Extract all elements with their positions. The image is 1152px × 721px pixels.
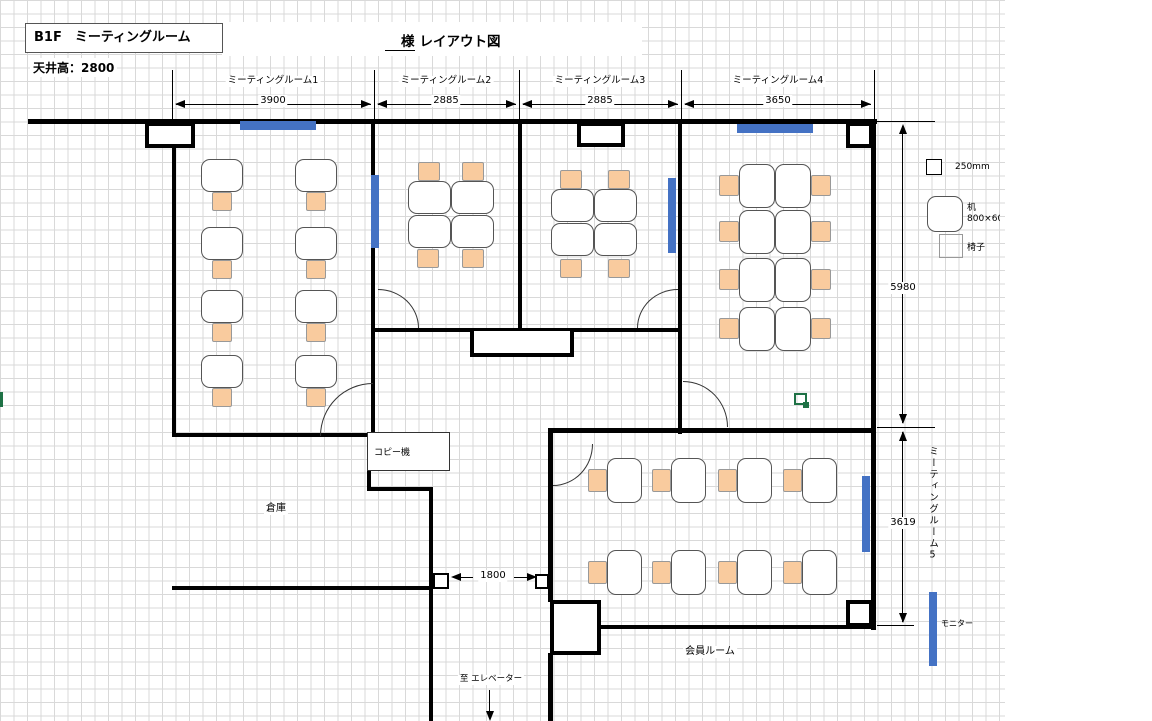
legend-desk-label: 机 (967, 200, 976, 213)
room4-width: 3650 (763, 95, 792, 107)
dim-line-1800 (459, 577, 473, 578)
dim-arrow (899, 414, 907, 424)
room2-name: ミーティングルーム2 (399, 76, 494, 87)
wall (548, 428, 875, 433)
desk (607, 550, 642, 595)
wall (367, 487, 431, 491)
chair (719, 221, 739, 242)
desk (802, 550, 837, 595)
green-selection-dot (803, 402, 809, 408)
desk (775, 164, 811, 208)
chair (718, 561, 737, 584)
monitor-bar (668, 178, 676, 253)
chair (608, 170, 630, 189)
wall (599, 625, 875, 629)
desk (451, 215, 494, 248)
monitor-bar (240, 121, 316, 130)
chair (417, 249, 439, 268)
wall-pillar (846, 600, 873, 627)
desk (671, 458, 706, 503)
desk (594, 223, 637, 256)
room5-name: ミーティングルーム5 (923, 446, 941, 596)
dim-line-5980 (902, 126, 903, 423)
chair (212, 192, 232, 211)
legend-grid-label: 250mm (955, 162, 990, 172)
chair (560, 170, 582, 189)
chair (306, 260, 326, 279)
legend-chair-shape (939, 234, 963, 258)
door-jamb (535, 574, 549, 589)
desk (201, 355, 243, 388)
desk (408, 215, 451, 248)
chair (811, 221, 831, 242)
desk (775, 307, 811, 351)
room1-width: 3900 (258, 95, 287, 107)
elevator-label: 至 エレベーター (458, 675, 524, 685)
wall (429, 487, 433, 721)
desk (551, 223, 594, 256)
chair (719, 318, 739, 339)
desk (594, 189, 637, 222)
dim-3619: 3619 (888, 517, 917, 529)
elevator-arrow (486, 711, 494, 721)
chair (719, 175, 739, 196)
green-edge-mark (0, 392, 3, 407)
room1-name: ミーティングルーム1 (226, 76, 321, 87)
chair (652, 561, 671, 584)
room3-width: 2885 (585, 95, 614, 107)
desk (671, 550, 706, 595)
legend-chair-label: 椅子 (967, 240, 985, 253)
dim-arrow (899, 431, 907, 441)
dim-tick (172, 70, 173, 122)
desk (295, 290, 337, 323)
dim-tick (374, 70, 375, 122)
room4-name: ミーティングルーム4 (731, 76, 826, 87)
chair (719, 269, 739, 290)
dim-arrow (377, 100, 387, 108)
copier-label: コピー機 (374, 445, 449, 458)
chair (462, 162, 484, 181)
desk (739, 258, 775, 302)
wall-pillar (577, 122, 625, 147)
monitor-bar (737, 124, 813, 133)
wall (518, 119, 522, 332)
chair (608, 259, 630, 278)
chair (588, 561, 607, 584)
dim-tick (519, 70, 520, 122)
wall (172, 586, 431, 590)
layout-title-text: レイアウト図 (420, 34, 501, 50)
wall (678, 119, 682, 434)
floorplan-canvas: コピー機 ミーティングルーム1 ミーティングルーム2 ミーティングルーム3 ミー… (0, 0, 1152, 721)
dim-tick (877, 427, 935, 428)
dim-line-1800 (514, 577, 528, 578)
legend-desk-shape (927, 196, 963, 232)
desk (201, 227, 243, 260)
elevator-arrow-line (489, 690, 490, 712)
dim-arrow (861, 100, 871, 108)
desk (802, 458, 837, 503)
legend-grid-square (926, 159, 942, 175)
dim-tick (874, 70, 875, 122)
chair (212, 388, 232, 407)
wall (172, 119, 176, 437)
dim-arrow (684, 100, 694, 108)
dim-arrow (527, 573, 537, 581)
wall-recess (470, 331, 574, 357)
copier-box: コピー機 (367, 432, 450, 471)
chair (783, 561, 802, 584)
chair (306, 388, 326, 407)
dim-arrow (668, 100, 678, 108)
dim-arrow (361, 100, 371, 108)
chair (212, 323, 232, 342)
legend-desk-size: 800×600 (967, 214, 1000, 224)
dim-arrow (899, 613, 907, 623)
storage-label: 倉庫 (264, 503, 288, 515)
monitor-label: モニター (941, 618, 973, 629)
desk (551, 189, 594, 222)
monitor-bar (371, 175, 379, 248)
monitor-bar (862, 476, 870, 552)
desk (739, 210, 775, 254)
ceiling-height-label: 天井高：2800 (30, 58, 117, 77)
wall (548, 653, 553, 721)
desk (451, 181, 494, 214)
room3-name: ミーティングルーム3 (553, 76, 648, 87)
chair (652, 469, 671, 492)
dim-1800: 1800 (478, 570, 507, 582)
chair (462, 249, 484, 268)
chair (588, 469, 607, 492)
monitor-bar (929, 592, 937, 666)
desk (775, 258, 811, 302)
chair (306, 323, 326, 342)
dim-arrow (522, 100, 532, 108)
client-name-blank: 様 (385, 34, 415, 51)
desk (201, 159, 243, 192)
desk (295, 159, 337, 192)
desk (739, 164, 775, 208)
wall-pillar (550, 600, 601, 655)
floor-title: B1F ミーティングルーム (25, 23, 223, 53)
desk (737, 550, 772, 595)
chair (783, 469, 802, 492)
desk (739, 307, 775, 351)
dim-arrow (899, 124, 907, 134)
chair (306, 192, 326, 211)
wall-pillar (145, 122, 195, 148)
wall (871, 119, 876, 630)
room2-width: 2885 (431, 95, 460, 107)
desk (737, 458, 772, 503)
desk (201, 290, 243, 323)
chair (811, 318, 831, 339)
desk (408, 181, 451, 214)
desk (775, 210, 811, 254)
chair (718, 469, 737, 492)
dim-5980: 5980 (888, 282, 917, 294)
dim-tick (877, 121, 935, 122)
desk (295, 227, 337, 260)
dim-arrow (506, 100, 516, 108)
member-room-label: 会員ルーム (683, 646, 737, 658)
chair (212, 260, 232, 279)
dim-tick (877, 625, 914, 626)
desk (295, 355, 337, 388)
layout-title: 様レイアウト図 (385, 30, 501, 50)
chair (418, 162, 440, 181)
dim-tick (681, 70, 682, 122)
chair (560, 259, 582, 278)
dim-arrow (175, 100, 185, 108)
desk (607, 458, 642, 503)
chair (811, 175, 831, 196)
door-jamb (433, 573, 449, 589)
chair (811, 269, 831, 290)
wall-pillar (846, 122, 873, 148)
